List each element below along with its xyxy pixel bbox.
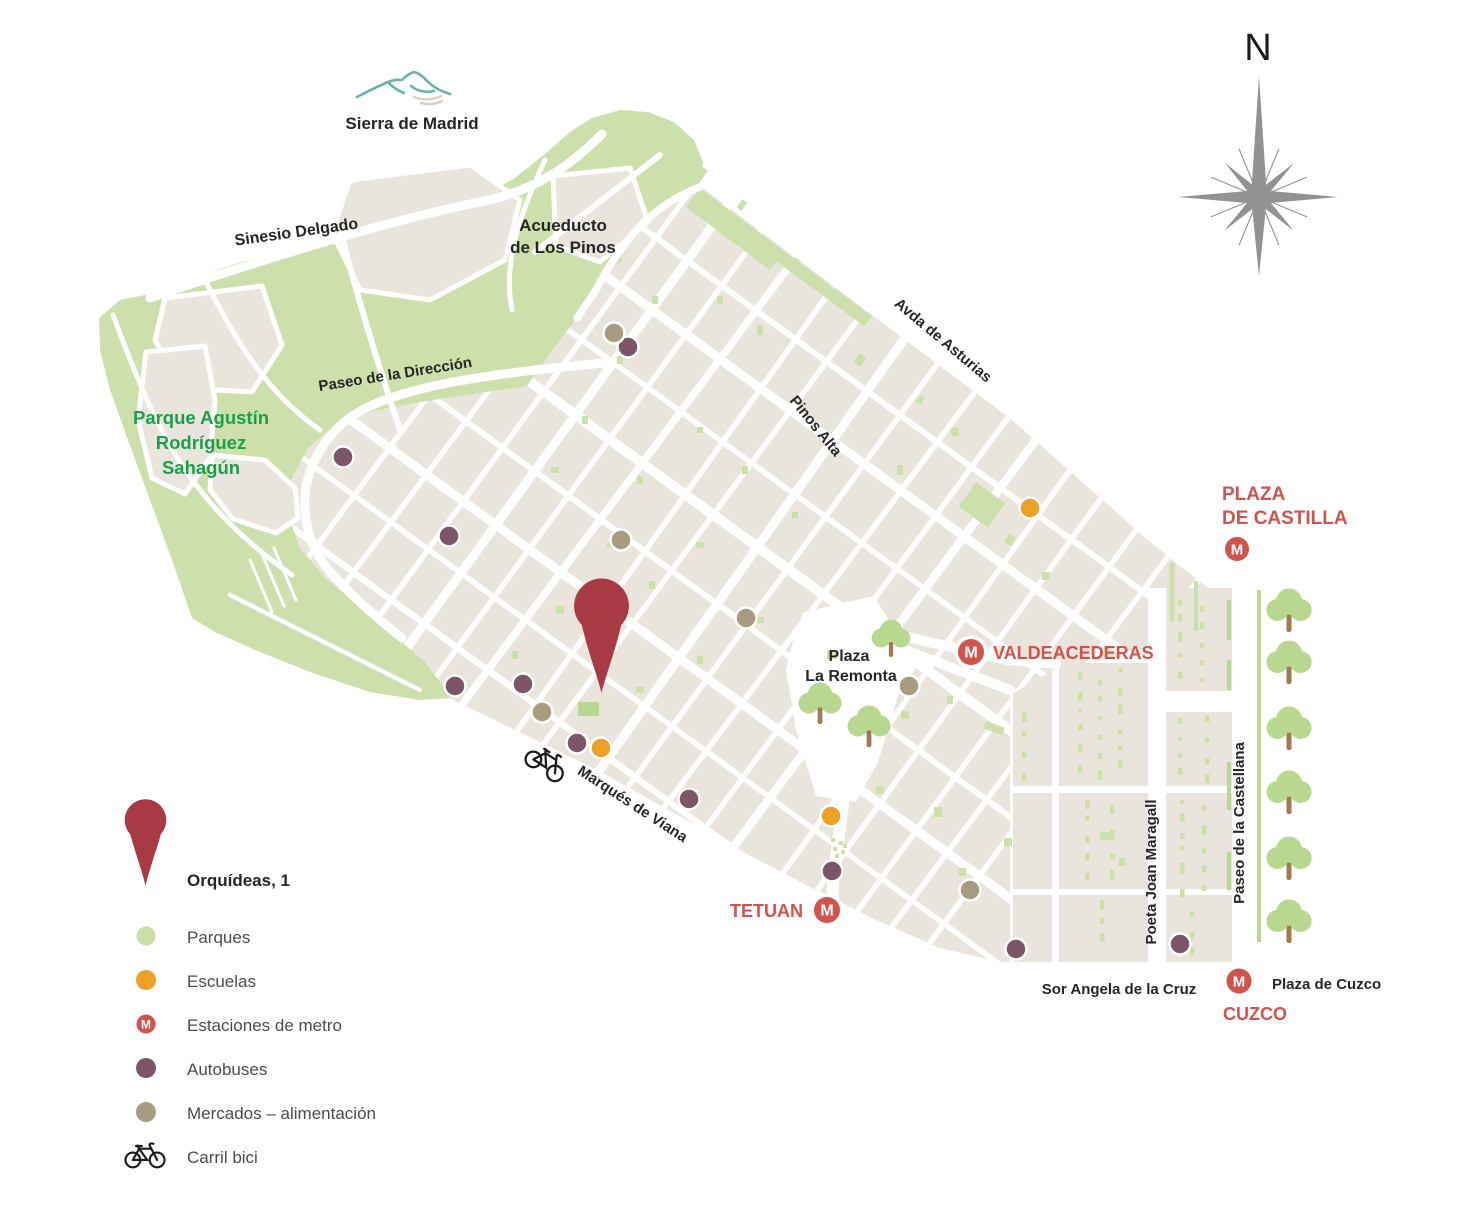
svg-text:Autobuses: Autobuses: [187, 1060, 267, 1079]
svg-text:Escuelas: Escuelas: [187, 972, 256, 991]
svg-text:de Los Pinos: de Los Pinos: [510, 238, 616, 257]
svg-text:Plaza: Plaza: [829, 648, 870, 665]
svg-text:DE CASTILLA: DE CASTILLA: [1222, 508, 1348, 529]
svg-text:VALDEACEDERAS: VALDEACEDERAS: [993, 643, 1154, 663]
svg-text:Sierra de Madrid: Sierra de Madrid: [345, 114, 478, 133]
svg-text:Acueducto: Acueducto: [519, 216, 607, 235]
svg-text:Orquídeas, 1: Orquídeas, 1: [187, 871, 290, 890]
svg-text:PLAZA: PLAZA: [1222, 484, 1286, 505]
svg-text:Poeta Joan Maragall: Poeta Joan Maragall: [1143, 799, 1160, 944]
svg-text:M: M: [964, 645, 977, 662]
svg-text:Sor Angela de la Cruz: Sor Angela de la Cruz: [1042, 981, 1196, 998]
svg-text:Plaza de Cuzco: Plaza de Cuzco: [1272, 976, 1381, 993]
svg-text:N: N: [1244, 27, 1271, 69]
svg-text:M: M: [1231, 541, 1244, 558]
svg-text:Rodríguez: Rodríguez: [156, 432, 246, 453]
svg-text:Parques: Parques: [187, 928, 250, 947]
svg-text:La Remonta: La Remonta: [805, 668, 897, 685]
svg-text:M: M: [820, 903, 833, 920]
svg-text:Mercados – alimentación: Mercados – alimentación: [187, 1104, 376, 1123]
svg-text:CUZCO: CUZCO: [1223, 1004, 1287, 1024]
svg-text:M: M: [141, 1017, 151, 1031]
svg-text:Sahagún: Sahagún: [162, 457, 240, 478]
svg-text:Estaciones de metro: Estaciones de metro: [187, 1016, 342, 1035]
svg-text:Parque Agustín: Parque Agustín: [133, 407, 269, 428]
svg-text:M: M: [1233, 973, 1246, 990]
svg-text:Paseo de la Castellana: Paseo de la Castellana: [1231, 741, 1248, 903]
svg-text:Carril bici: Carril bici: [187, 1148, 258, 1167]
svg-text:TETUAN: TETUAN: [730, 901, 803, 921]
